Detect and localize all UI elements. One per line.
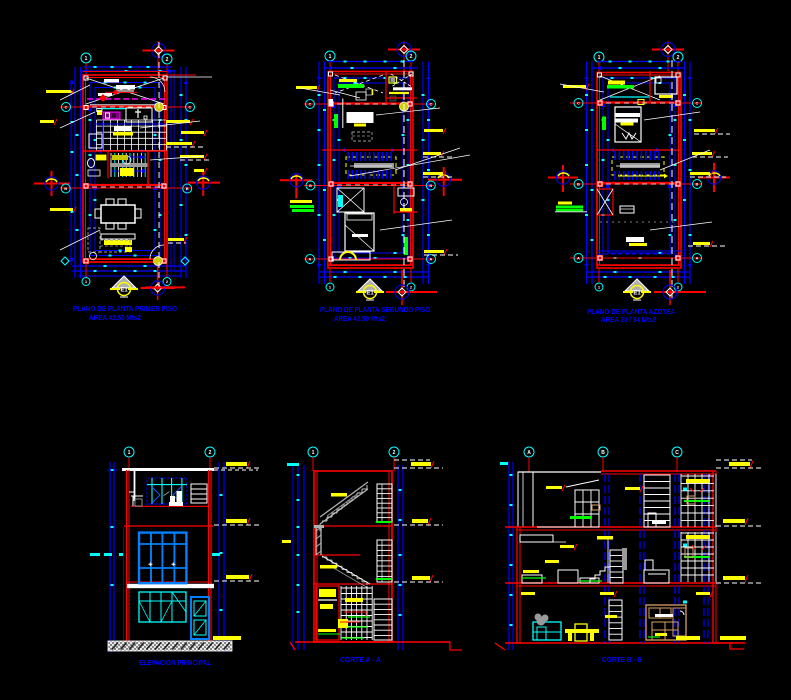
svg-text:PLANO DE PLANTA SEGUNDO PISO: PLANO DE PLANTA SEGUNDO PISO — [320, 307, 430, 314]
svg-text:1: 1 — [312, 450, 315, 456]
svg-text:A: A — [527, 450, 531, 456]
svg-text:C: C — [675, 450, 679, 456]
svg-text:A: A — [577, 255, 580, 260]
svg-text:E1: E1 — [366, 291, 374, 297]
svg-text:2: 2 — [209, 450, 212, 456]
svg-text:1: 1 — [329, 54, 332, 60]
svg-text:B: B — [309, 183, 312, 188]
svg-text:CORTE A - A: CORTE A - A — [340, 657, 381, 664]
svg-text:2: 2 — [393, 450, 396, 456]
svg-text:C: C — [577, 100, 580, 105]
svg-text:CORTE B - B: CORTE B - B — [602, 657, 642, 664]
svg-text:1: 1 — [128, 450, 131, 456]
svg-text:2: 2 — [677, 55, 680, 61]
svg-text:C: C — [309, 101, 312, 106]
svg-text:B: B — [696, 181, 699, 186]
svg-text:C: C — [189, 104, 192, 109]
svg-text:B: B — [429, 183, 432, 188]
svg-text:C: C — [696, 100, 699, 105]
svg-text:AREA 42.50 Mts2: AREA 42.50 Mts2 — [334, 316, 385, 323]
svg-text:1: 1 — [85, 56, 88, 62]
svg-text:2: 2 — [166, 57, 169, 63]
svg-text:PLANO DE PLANTA AZOTEA: PLANO DE PLANTA AZOTEA — [587, 309, 675, 316]
svg-text:B: B — [601, 450, 605, 456]
svg-text:2: 2 — [410, 54, 413, 60]
svg-text:PLANO DE PLANTA PRIMER PISO: PLANO DE PLANTA PRIMER PISO — [73, 306, 178, 313]
svg-text:C: C — [430, 101, 433, 106]
svg-text:B: B — [186, 186, 189, 191]
svg-text:A: A — [309, 256, 312, 261]
svg-text:A: A — [696, 255, 699, 260]
svg-text:E1: E1 — [633, 291, 641, 297]
svg-text:AREA 23 / 34 Mts2: AREA 23 / 34 Mts2 — [601, 317, 656, 324]
svg-text:ELEVACION PRINCIPAL: ELEVACION PRINCIPAL — [139, 660, 212, 667]
svg-text:B: B — [577, 181, 580, 186]
svg-text:A: A — [430, 256, 433, 261]
svg-text:AREA 42.50 Mts2: AREA 42.50 Mts2 — [89, 315, 141, 322]
svg-text:1: 1 — [598, 55, 601, 61]
svg-text:B: B — [64, 186, 67, 191]
svg-text:E1: E1 — [120, 288, 128, 294]
svg-text:C: C — [65, 104, 68, 109]
